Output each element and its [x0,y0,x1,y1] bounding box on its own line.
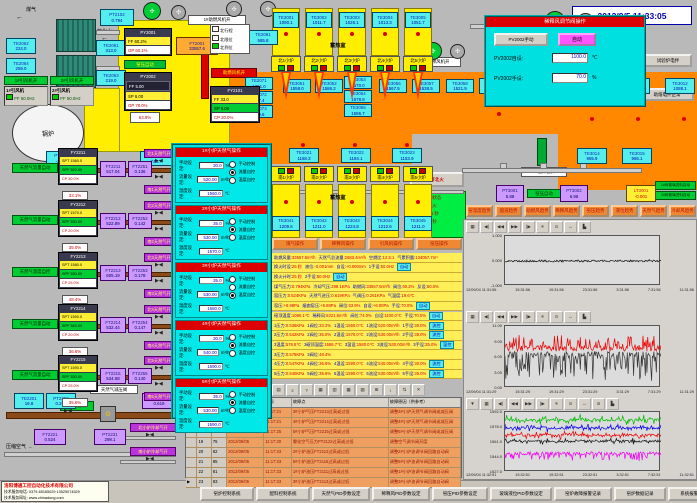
chart-toolbar-icon[interactable]: ▙ [578,221,591,233]
gas-valve-south-icon[interactable]: ▶◀ [155,227,163,232]
radio-温度自控[interactable]: 温度自控 [229,350,267,357]
radio-温度自控[interactable]: 温度自控 [229,234,267,241]
north-port-box[interactable]: 北2小炉 [304,56,334,72]
data-token: 2手设:35.0% [402,332,426,338]
flame-icon [314,72,324,100]
flame-detector-dot [301,143,305,147]
alarm-row[interactable]: 22812012/09/0511:17:331#小炉油压FT2111过高或过低调… [186,468,461,478]
field-label: 温度设定: [179,303,197,315]
chart-ytick: 1.000 [466,233,502,239]
chart-series [505,452,661,461]
chart-xtick: 23:31:56 [583,288,598,295]
field-input[interactable]: 1570.0 [199,248,223,255]
gas-valve-south-icon[interactable]: ▶◀ [155,175,163,180]
data-token: 自动 [429,312,443,320]
TE3045-box: TE30451211.0 [404,216,432,231]
chart-toolbar-icon[interactable]: ◀◀ [494,311,507,323]
feeder1-auto-label: 1#碎玻璃进料自动 [655,181,696,190]
py2002-panel-header: PY2002 [126,74,170,80]
chart-series [505,260,661,262]
mixer-graphic [537,138,547,166]
chart-toolbar-icon[interactable]: ↔ [578,398,591,410]
radio-流量自控[interactable]: 流量自控 [229,284,267,291]
chart-toolbar-icon[interactable]: ◀| [480,221,493,233]
valve-percent: 35.6% [62,398,88,407]
TE3004-box: TE30041013.3 [372,12,398,28]
data-token: 稀释风:6321.6m³/h [312,313,347,319]
radio-流量自控[interactable]: 流量自控 [229,169,267,176]
LT3001-box: LT3001-0.001 [626,185,656,202]
data-row: 2压力:0.542KPa2阀位:35.0%2温设:1570.0℃2流设:530.… [272,331,462,341]
field-input[interactable]: 35.0 [199,393,224,400]
ft-box: FT22520.142 [128,213,152,229]
fy2101-panel-row: CP 20.0% [212,113,258,121]
chart-ytick: 1561.0 [466,439,502,445]
TE3005-box: TE30051051.7 [405,12,431,28]
chart-toolbar-icon[interactable]: ⊙ [564,398,577,410]
chart-series [505,438,661,444]
data-token: 1手设:30.0% [402,323,426,329]
alarm-toolbar-icon[interactable]: ▤ [272,384,285,396]
py2002-panel-row: SP 6.00 [126,92,170,100]
TE2063-box: TE2063219.0 [96,70,126,86]
gas-valve-north-icon[interactable]: ▶◀ [155,159,163,164]
flame-detector-dot [682,117,686,121]
field-label: 流量设定: [179,347,195,359]
pipe [462,168,642,173]
chart-toolbar-icon[interactable]: ▙ [606,398,619,410]
field-input[interactable]: 30.0 [199,162,224,169]
TE3014-box: TE3014965.9 [577,148,607,164]
py2002-panel-row: OP 78.0% [126,101,170,109]
chart-xlabels: 12/09/04 11:32:5115:32:5119:32:5123:32:5… [466,473,694,480]
data-token: 1阀位:33.2% [307,323,331,329]
PT2102-box: PT21020.794 [100,9,134,26]
chart-toolbar-icon[interactable]: ◀◀ [494,221,507,233]
trend-button[interactable]: 烟道趋势 [495,205,522,217]
kiln-pressure-auto2-label: 窑压自动 [527,189,561,198]
data-token: 3温度:578.8℃ [274,342,301,348]
north-gas-open-label: 北4天然气开 [144,305,174,314]
id-fan-on-label: 1#引风机开 [4,76,48,85]
chart-series [505,424,661,432]
alarm-toolbar-icon[interactable]: ▥ [328,384,341,396]
field-input[interactable]: 1580.0 [199,305,223,312]
field-input[interactable]: 540.00 [197,349,219,356]
field-unit: m³/h [221,235,230,240]
reversal-legend: 北行程 北限位 北到位 [210,24,250,54]
data-token: 1流设:520.00m³/h [366,323,399,329]
data-token: 反设:60.0% [417,284,438,290]
field-input[interactable]: 1590.0 [199,421,223,428]
radio-流量自控[interactable]: 流量自控 [229,399,267,406]
gas-valve-north-icon[interactable]: ▶◀ [155,263,163,268]
popup-section-title: 4#小炉天然气操作 [176,321,267,330]
regenerator-north-label: 蓄热室 [330,42,370,50]
data-token: 煤气压力:0.794KPa [274,284,310,290]
data-token: 流控 [429,370,443,378]
bottom-button[interactable]: 窑压PID参数设定 [432,487,488,501]
radio-手动控制[interactable]: 手动控制 [229,218,267,225]
chart-toolbar-icon[interactable]: ▙ [578,311,591,323]
field-input[interactable]: 530.00 [197,407,219,414]
data-token: 气温度:19.6℃ [388,293,415,299]
trend-button[interactable]: 窑压趋势 [582,205,609,217]
field-input[interactable]: 35.0 [199,277,224,284]
data-token: 4温设:1590.0℃ [334,361,363,367]
chart-toolbar-icon[interactable]: ✳ [536,311,549,323]
gas-valve-south-icon[interactable]: ▶◀ [155,279,163,284]
ft-box: FT22550.140 [128,368,152,384]
data-token: 烟囱窑压:+5.88Pa [302,303,336,309]
TE3002-box: TE30021011.7 [306,12,332,28]
mid-button[interactable]: 窑压操作 [416,238,462,250]
chart-toolbar-icon[interactable]: |▶ [536,398,549,410]
air-valve-south-icon[interactable]: ▶◀ [146,457,154,462]
chart-toolbar-icon[interactable]: |▶ [522,221,535,233]
radio-温度自控[interactable]: 温度自控 [229,177,267,184]
mid-button[interactable]: 稀释风操作 [320,238,366,250]
data-token: 1温设:1560.0℃ [334,323,363,329]
fuel-panel-FY2215: FY2215SPT 1590.0SPF 530.00CP 25.0% [58,355,98,392]
bottom-button[interactable]: 稀释风PID参数设定 [372,487,430,501]
north-gas-open-label: 北3天然气开 [144,253,174,262]
chart-plot [504,235,660,285]
trend-button[interactable]: 助燃风趋势 [524,205,551,217]
data-token: 碹顶温度:1090.1℃ [274,313,309,319]
data-token: 3压力:0.578KPa [274,352,304,358]
chart-toolbar-icon[interactable]: ✳ [550,398,563,410]
popup-section-title: 5#小炉天然气操作 [176,379,267,388]
chart-toolbar-icon[interactable]: ⊘ [592,398,605,410]
FT2221-box: FT22210.524 [34,429,66,445]
alarm-row[interactable]: 21852012/09/0511:17:335#小炉油压FT2115过高或过低调… [186,458,461,468]
data-token: 窑压:+6.98Pa [274,303,299,309]
data-token: 5手设:35.0% [402,371,426,377]
chart-toolbar-icon[interactable]: ▦ [480,398,493,410]
alarm-toolbar-icon[interactable]: ▦ [342,384,355,396]
gas-valve-south-icon[interactable]: ▶◀ [155,382,163,387]
data-token: 换火计时:25 秒 [274,274,302,280]
flame-detector-dot [416,32,420,36]
chart-toolbar-icon[interactable]: ▶▶ [522,398,535,410]
chart-xtick: 23:31:29 [583,390,598,397]
field-input[interactable]: 30.0 [199,335,224,342]
data-token: 气调压:0.261KPa [353,293,385,299]
north-gas-open-label: 北2天然气开 [144,201,174,210]
alarm-toolbar-icon[interactable]: ⇅ [398,384,411,396]
bottom-button[interactable]: 天然气PID参数设定 [312,487,370,501]
ft-box: FT2212522.89 [100,213,126,229]
py2001-panel-header: PY2001 [126,30,170,36]
data-row: 助燃风量:33557.6m³/h天然气总流量:2683.4m³/h空燃比:12.… [272,253,462,263]
TE3022-box: TE30221184.1 [341,148,371,163]
data-token: 天然气总流量:2683.4m³/h [318,255,365,261]
flame-detector-dot [497,112,501,116]
trend-button[interactable]: 稀释风趋势 [553,205,580,217]
alarm-row[interactable]: 20822012/09/0511:17:332#小炉油压FT2112过高或过低调… [186,448,461,458]
company-box: 洛阳博通工控自动化技术有限公司 技术服务电话: 0379-65165029 13… [1,481,109,502]
data-token: 助燃风:33557.6m³/h [353,284,390,290]
data-token: 温控 [440,341,454,349]
popup-section: 4#小炉天然气操作手动设定:30.0%流量设定:540.00m³/h温度设定:1… [175,320,268,376]
chart-ytick: 1544.0 [466,454,502,460]
gas-valve-north-icon[interactable]: ▶◀ [155,366,163,371]
south-port-box[interactable]: 南2小炉 [304,166,334,182]
field-unit: m³/h [221,408,230,413]
popup-section: 1#小炉天然气操作手动设定:30.0%流量设定:520.00m³/h温度设定:1… [175,147,268,203]
id-fan-box: 1#引风机 FF 50.0Hz [4,86,48,106]
bottom-button[interactable]: 系统报警值设定 [668,487,697,501]
field-label: 温度设定: [179,245,197,257]
feeder2-auto-label: 2#碎玻璃进料自动 [655,191,696,200]
TE3023-box: TE30231153.9 [392,148,422,163]
chart-toolbar-icon[interactable]: ▦ [466,221,479,233]
field-label: 流量设定: [179,404,195,416]
north-port-box[interactable]: 北4小炉 [370,56,400,72]
data-token: 3阀位:48.4% [307,352,331,358]
data-token: 换火时设:25 秒 [274,264,302,270]
field-input[interactable]: 530.00 [197,234,219,241]
alarm-toolbar-icon[interactable]: ▦ [314,384,327,396]
chart-toolbar: ▼▦◀|◀◀▶▶|▶✳⊙↔⊘▙ [466,398,646,409]
bottom-button[interactable]: 配料控制系统 [256,487,310,501]
chart-toolbar-icon[interactable]: ◀◀ [508,398,521,410]
data-token: 手设:70.0% [392,303,413,309]
gas-valve-icon[interactable]: ▶◀ [64,409,72,414]
data-token: 自设:1100.0℃ [375,313,402,319]
north-port-box[interactable]: 北3小炉 [337,56,367,72]
test-furnace-button[interactable]: 试验炉电拌 [644,54,692,67]
field-input[interactable]: 35.0 [199,220,224,227]
pv2002-manual-set-unit: % [592,75,596,81]
south-port-box[interactable]: 南3小炉 [337,166,367,182]
company-name: 洛阳博通工控自动化技术有限公司 [4,483,106,490]
field-label: 流量设定: [179,231,195,243]
flame-detector-dot [350,32,354,36]
data-token: 流控 [429,322,443,330]
chart-series [505,351,661,380]
data-token: 3温设:1580.0℃ [345,342,374,348]
TE3015-box: TE3015965.1 [622,148,652,164]
gas-valve-south-icon[interactable]: ▶◀ [155,331,163,336]
data-token: 1手设:50.0Hz [369,264,394,270]
south-gas-open-label: 南4天然气开 [144,341,174,350]
alarm-toolbar-icon[interactable]: ↕ [384,384,397,396]
bottom-button[interactable]: 窑炉控制系统 [200,487,254,501]
data-row: 换火时设:25 秒液位:-0.001mm自设:+0.000mm1手设:50.0H… [272,263,462,273]
data-token: 2压力:0.542KPa [274,332,304,338]
pv2002-manual-button[interactable]: PV2002手动 [494,33,548,46]
data-token: 液位:-0.001mm [305,264,333,270]
flame-icon [380,72,390,100]
chart-xtick: 15:31:29 [515,390,530,397]
data-token: 3流设:530.00m³/h [377,342,410,348]
chart-toolbar-icon[interactable]: ◀| [480,311,493,323]
chart-xtick: 19:31:29 [549,390,564,397]
field-unit: m³/h [221,177,230,182]
chart-xtick: 11:31:56 [679,288,694,295]
pv2002-auto-button[interactable]: 自动 [558,33,596,46]
chart-plot [504,411,660,471]
bottom-button[interactable]: 玻璃液位PID参数设定 [490,487,552,501]
data-token: 冷却气压:298.1KPa [313,284,349,290]
alarm-row[interactable]: 19752012/09/0511:17:30雾化空气压力PT2122过高或过低调… [186,438,461,448]
chart-toolbar-icon[interactable]: ⊙ [550,221,563,233]
data-token: 4压力:0.547KPa [274,361,304,367]
ft-box: FT22540.147 [128,317,152,333]
field-label: 流量设定: [179,174,195,186]
compressed-air-label: 压缩空气 → [6,443,32,450]
chart-xlabels: 12/09/04 11:31:5615:31:5619:31:5623:31:5… [466,288,694,295]
fuel-mode-label: 天然气流量自动 [12,163,58,173]
data-token: 2手设:50.0Hz [305,274,330,280]
valve-percent: 48.4% [62,295,88,304]
legend-item: 北行程 [212,26,248,35]
gas-valve-north-icon[interactable]: ▶◀ [155,315,163,320]
popup-section: 5#小炉天然气操作手动设定:35.0%流量设定:530.00m³/h温度设定:1… [175,378,268,434]
chart-xtick: 3:32:51 [616,473,629,480]
pipe-hanger [500,163,507,169]
chart-toolbar-icon[interactable]: ▦ [466,311,479,323]
chart-toolbar-icon[interactable]: ✳ [536,221,549,233]
mid-button[interactable]: 煤气操作 [272,238,318,250]
chart-toolbar-icon[interactable]: ◀| [494,398,507,410]
field-input[interactable]: 520.00 [197,176,219,183]
chart-xtick: 3:31:56 [616,288,629,295]
flame-icon [347,72,357,100]
data-row: 5压力:0.540KPa5阀位:35.6%5温设:1590.0℃5流设:530.… [272,370,462,380]
field-label: 手动设定: [179,217,197,229]
py2001-panel: PY2001FF 60.2%OP 60.1% [124,28,172,56]
radio-温度自控[interactable]: 温度自控 [229,292,267,299]
fy2101-panel-row: SP 5.00 [212,104,258,112]
chart-toolbar-icon[interactable]: ⊙ [550,311,563,323]
north-port-box[interactable]: 北5小炉 [403,56,433,72]
south-port-box[interactable]: 南4小炉 [370,166,400,182]
radio-流量自控[interactable]: 流量自控 [229,226,267,233]
chart-toolbar-icon[interactable]: ▶▶ [508,221,521,233]
flame-icon [413,72,423,100]
north-port-box[interactable]: 北1小炉 [271,56,301,72]
chart-ytick: 1578.0 [466,424,502,430]
trend-button[interactable]: 冷却风趋势 [669,205,696,217]
pv2002-auto-set-input[interactable]: 1100.0 [552,53,588,63]
data-token: 助燃风量:33557.6m³/h [274,255,315,261]
data-row: 4压力:0.547KPa4阀位:36.6%4温设:1590.0℃4流设:540.… [272,360,462,370]
south-gas-open-label: 南1天然气开 [144,185,174,194]
alarm-toolbar-icon[interactable]: ▧ [356,384,369,396]
data-token: 5压力:0.540KPa [274,371,304,377]
data-token: 天然气进压:0.619KPa [309,293,350,299]
py2001-panel-row: FF 60.2% [126,37,170,45]
field-input[interactable]: 1590.0 [199,363,223,370]
data-token: 自动 [397,263,411,271]
radio-手动控制[interactable]: 手动控制 [229,161,267,168]
trend-button[interactable]: 窑温度趋势 [466,205,493,217]
TE3021-box: TE30211168.3 [289,148,319,163]
radio-手动控制[interactable]: 手动控制 [229,334,267,341]
data-token: 1压力:0.536KPa [274,323,304,329]
TE3012-box: TE30121088.1 [665,78,695,94]
alarm-toolbar-icon[interactable]: ⊞ [370,384,383,396]
chart-toolbar-icon[interactable]: ↔ [564,221,577,233]
radio-温度自控[interactable]: 温度自控 [229,407,267,414]
south-port-box[interactable]: 南1小炉 [271,166,301,182]
kiln-pressure-auto-label: 窑压自动 [124,60,166,69]
data-token: 2流设:530.00m³/h [366,332,399,338]
data-token: 5阀位:35.6% [307,371,331,377]
chart-toolbar: ▦◀|◀◀▶▶|▶✳⊙↔▙ [466,221,646,232]
pv2002-auto-set-label: PV2002自设: [494,55,523,62]
air-valve-north-icon[interactable]: ▶◀ [146,433,154,438]
data-token: 自动 [416,302,430,310]
gas-valve-north-icon[interactable]: ▶◀ [155,211,163,216]
trend-button[interactable]: 天然气趋势 [640,205,667,217]
chart-toolbar-icon[interactable]: ↔ [564,311,577,323]
radio-手动控制[interactable]: 手动控制 [229,391,267,398]
south-port-box[interactable]: 南5小炉 [403,166,433,182]
regenerator-south-label: 蓄热室 [330,194,370,202]
TE3042-box: TE30421211.0 [305,216,333,231]
damper-percent: 63.9% [130,112,160,123]
south-gas-open-label: 南5天然气开 [144,392,174,401]
fuel-panel-FY2211: FY2211SPT 1560.0SPF 520.00CP 30.0% [58,148,98,185]
ft-box: FT2215534.58 [100,368,126,384]
bottom-button[interactable]: 窑炉故障报警记录 [554,487,612,501]
field-label: 温度设定: [179,188,197,200]
chart-xtick: 7:31:29 [648,390,661,397]
id-fan-on-label: 2#引风机开 [50,76,94,85]
popup-section: 3#小炉天然气操作手动设定:35.0%流量设定:530.00m³/h温度设定:1… [175,262,268,318]
pv2002-manual-set-input[interactable]: 70.0 [552,73,588,83]
south-gas-open-label: 南2天然气开 [144,237,174,246]
data-token: 2温设:1570.0℃ [334,332,363,338]
pv2002-manual-set-label: PV2002手设: [494,75,523,82]
ft-box: FT22510.136 [128,161,152,177]
radio-流量自控[interactable]: 流量自控 [229,342,267,349]
chart-toolbar-icon[interactable]: ▶▶ [508,311,521,323]
alarm-toolbar-icon[interactable]: ? [300,384,313,396]
py2001-panel-row: OP 60.1% [126,46,170,54]
data-token: 阀位:63.9% [339,303,360,309]
field-label: 流量设定: [179,289,195,301]
TE2081-box: TE2081585.8 [248,30,278,45]
TE2064-box: TE2064259.0 [6,58,36,74]
chart-series [505,415,661,425]
trend-button[interactable]: 液位趋势 [611,205,638,217]
data-row: 3温度:578.8℃3碹顶温度:1586.7℃3温设:1580.0℃3流设:53… [272,341,462,351]
data-row: 3压力:0.578KPa3阀位:48.4% [272,350,462,360]
chart-xtick: 23:32:51 [583,473,598,480]
bottom-button[interactable]: 窑炉数据记录 [614,487,666,501]
chart-xtick: 19:32:51 [549,473,564,480]
field-input[interactable]: 530.00 [197,291,219,298]
field-label: 手动设定: [179,160,197,172]
alarm-toolbar-icon[interactable]: ≡ [286,384,299,396]
chart-toolbar-icon[interactable]: ▼ [466,398,479,410]
radio-手动控制[interactable]: 手动控制 [229,276,267,283]
chart-xtick: 15:31:56 [515,288,530,295]
alarm-toolbar-icon[interactable]: ✕ [412,384,425,396]
field-input[interactable]: 1560.0 [199,190,223,197]
chart-plot [504,325,660,387]
fuel-panel-FY2213: FY2213SPT 1580.0SPF 530.00CP 25.0% [58,252,98,289]
fan-icon: ✣ [450,44,465,59]
chart-toolbar-icon[interactable]: |▶ [522,311,535,323]
mid-button[interactable]: 引风机操作 [368,238,414,250]
north-cooling-air-label: 北小炉冷却气开 [130,423,176,432]
